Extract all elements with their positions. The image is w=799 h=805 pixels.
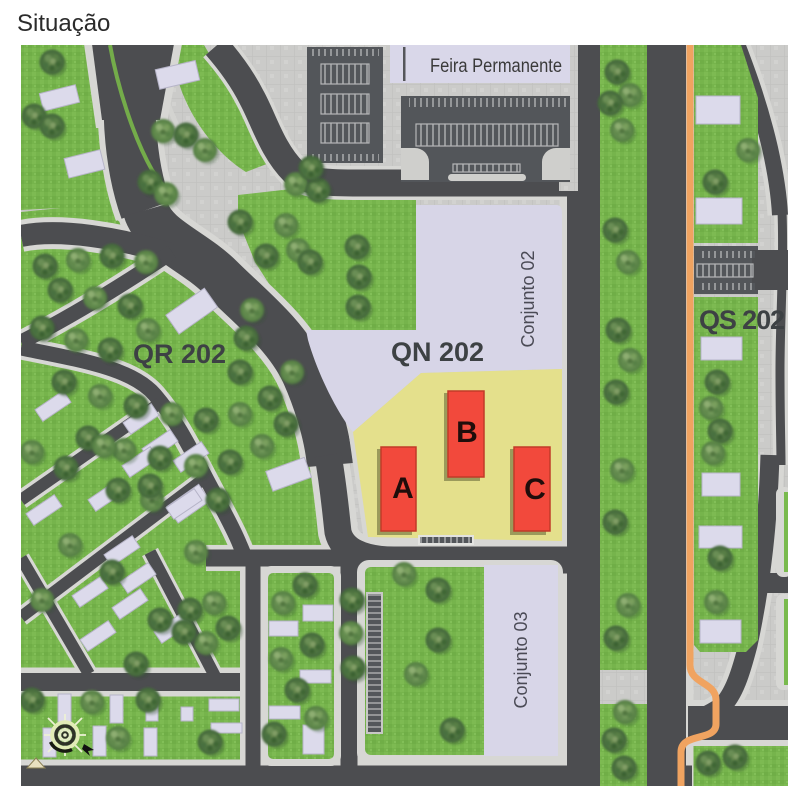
svg-text:Feira Permanente: Feira Permanente <box>430 56 562 77</box>
svg-text:Conjunto 03: Conjunto 03 <box>511 611 531 708</box>
svg-text:Situação: Situação <box>17 10 110 37</box>
svg-text:C: C <box>524 473 546 506</box>
svg-text:B: B <box>456 416 478 449</box>
svg-text:QR 202: QR 202 <box>133 339 226 369</box>
svg-text:A: A <box>392 472 414 505</box>
svg-text:QN 202: QN 202 <box>391 337 484 367</box>
svg-text:Conjunto 02: Conjunto 02 <box>518 250 538 347</box>
svg-text:QS 202: QS 202 <box>699 305 785 335</box>
